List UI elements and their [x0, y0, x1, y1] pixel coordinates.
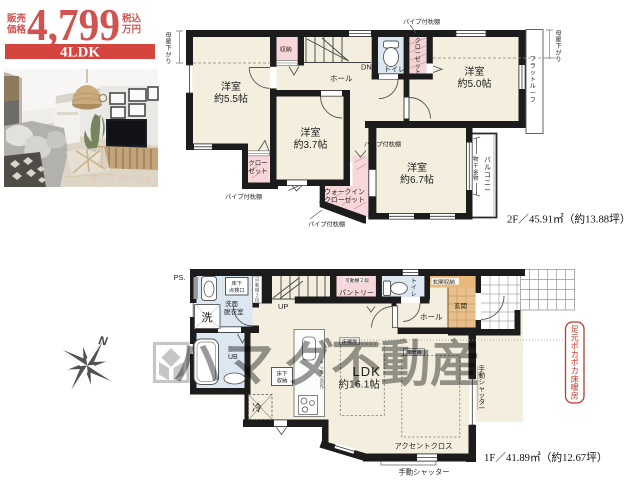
svg-text:ダーク ベージュ: ダーク ベージュ [90, 173, 151, 183]
svg-text:ウォークイン: ウォークイン [324, 188, 365, 196]
svg-text:産: 産 [430, 336, 480, 392]
svg-text:1F／41.89㎡（約12.67坪）: 1F／41.89㎡（約12.67坪） [484, 451, 608, 464]
svg-text:母屋下がり: 母屋下がり [165, 32, 171, 65]
svg-text:アクセントクロス: アクセントクロス [395, 442, 453, 451]
svg-text:玄関収納: 玄関収納 [433, 278, 456, 286]
svg-text:ホール: ホール [330, 74, 353, 83]
svg-text:税込: 税込 [122, 13, 142, 25]
svg-text:洋室: 洋室 [465, 65, 485, 78]
svg-text:パイプ付枕棚: パイプ付枕棚 [308, 221, 345, 229]
svg-text:脱衣室: 脱衣室 [224, 307, 244, 316]
svg-text:販売: 販売 [7, 13, 27, 25]
svg-text:約6.7帖: 約6.7帖 [400, 173, 434, 186]
svg-text:2F／45.91㎡（約13.88坪）: 2F／45.91㎡（約13.88坪） [507, 213, 626, 226]
svg-text:ダ: ダ [284, 336, 334, 392]
svg-text:洋室: 洋室 [407, 161, 427, 174]
svg-text:約5.0帖: 約5.0帖 [458, 77, 492, 90]
svg-text:ゼット: ゼット [248, 166, 268, 175]
svg-text:パイプ付枕棚: パイプ付枕棚 [403, 18, 440, 26]
svg-text:洋室: 洋室 [221, 80, 241, 93]
svg-text:玄関: 玄関 [454, 301, 467, 310]
svg-text:可動棚２段: 可動棚２段 [345, 277, 369, 284]
svg-text:DN: DN [361, 63, 372, 72]
svg-text:点検口: 点検口 [229, 286, 245, 294]
svg-text:4LDK: 4LDK [60, 45, 100, 61]
svg-text:パントリー: パントリー [339, 289, 374, 297]
svg-text:UP: UP [278, 302, 288, 311]
svg-text:バルコニー: バルコニー [484, 156, 491, 194]
svg-text:N: N [97, 333, 108, 348]
svg-text:手動シャッター: 手動シャッター [399, 468, 450, 477]
svg-text:収納: 収納 [280, 46, 292, 54]
svg-text:足元ポカポカ床暖房: 足元ポカポカ床暖房 [571, 325, 579, 400]
svg-text:万円: 万円 [121, 25, 141, 36]
svg-text:洗面: 洗面 [225, 299, 239, 308]
svg-text:約3.7帖: 約3.7帖 [294, 138, 328, 151]
svg-text:洗: 洗 [202, 311, 213, 324]
svg-text:床下: 床下 [232, 279, 242, 287]
svg-text:冷: 冷 [252, 402, 262, 415]
svg-text:マ: マ [224, 336, 274, 392]
svg-text:洋室: 洋室 [301, 126, 321, 139]
svg-text:パイプ付枕棚: パイプ付枕棚 [225, 193, 262, 201]
svg-text:トイレ: トイレ [411, 279, 417, 298]
svg-text:クローゼット: クローゼット [324, 195, 365, 204]
svg-text:4,799: 4,799 [27, 0, 120, 50]
svg-text:可動棚３段: 可動棚３段 [255, 278, 260, 304]
svg-text:PS.: PS. [174, 273, 186, 282]
svg-text:クローゼット: クローゼット [415, 38, 421, 76]
svg-text:ホール: ホール [420, 313, 443, 322]
svg-text:トイレ: トイレ [384, 67, 405, 74]
svg-text:約5.5帖: 約5.5帖 [214, 92, 248, 105]
svg-text:動: 動 [381, 336, 431, 392]
svg-text:価格: 価格 [6, 24, 27, 36]
svg-text:母屋下がり: 母屋下がり [555, 30, 561, 63]
svg-text:フラットルーフ: フラットルーフ [530, 56, 536, 104]
svg-text:パイプ付枕棚: パイプ付枕棚 [364, 141, 401, 149]
svg-text:クロー: クロー [248, 159, 268, 167]
svg-text:物干金物: 物干金物 [473, 155, 479, 182]
svg-text:ハ: ハ [172, 336, 222, 392]
svg-text:不: 不 [331, 336, 381, 392]
